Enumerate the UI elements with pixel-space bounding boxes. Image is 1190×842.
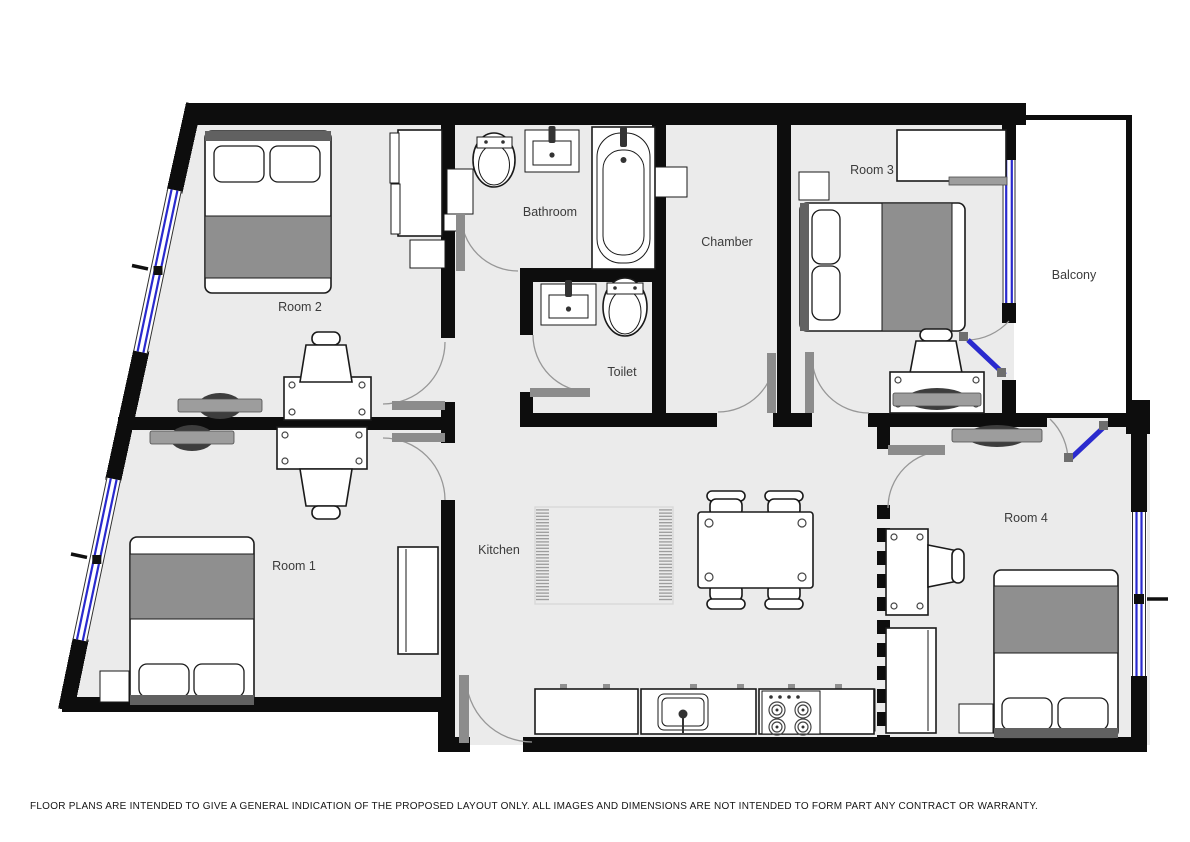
toilet-bathroom (473, 133, 515, 187)
label-room3: Room 3 (850, 163, 894, 177)
niche-chamber-wall (655, 167, 687, 197)
kitchen-counter (535, 684, 874, 735)
label-kitchen: Kitchen (478, 543, 520, 557)
wall-right (1131, 414, 1147, 512)
wall-bottom (523, 737, 1147, 752)
desk-room3-top (897, 130, 1006, 181)
niche-room2-wall (447, 169, 473, 214)
bed-room3 (800, 203, 965, 331)
nightstand-room3 (799, 172, 829, 200)
toilet-wc (603, 278, 647, 336)
chair-room4 (928, 545, 964, 587)
nightstand-room2 (410, 240, 445, 268)
tv-table-room3 (890, 372, 984, 413)
wardrobe-room2 (390, 130, 442, 236)
floor-plan-page: Room 2 Room 1 Room 3 Room 4 Bathroom Toi… (0, 0, 1190, 842)
label-chamber: Chamber (701, 235, 752, 249)
wall-chamber-right (777, 125, 791, 414)
bed-room2 (205, 131, 331, 293)
disclaimer-text: FLOOR PLANS ARE INTENDED TO GIVE A GENER… (30, 801, 1038, 812)
label-toilet: Toilet (607, 365, 637, 379)
label-room2: Room 2 (278, 300, 322, 314)
wall-toilet-bottom (520, 413, 717, 427)
desk-room4 (886, 529, 928, 615)
label-room1: Room 1 (272, 559, 316, 573)
dining-table (698, 512, 813, 588)
wardrobe-room4 (886, 628, 936, 733)
wardrobe-room1 (398, 547, 438, 654)
label-bathroom: Bathroom (523, 205, 577, 219)
kitchen-sink (658, 694, 708, 733)
desk-room2 (284, 377, 371, 420)
floor-plan-drawing: Room 2 Room 1 Room 3 Room 4 Bathroom Toi… (0, 0, 1190, 842)
label-balcony: Balcony (1052, 268, 1097, 282)
wall-bathroom-bottom (520, 268, 657, 282)
bed-room1 (130, 537, 254, 705)
bed-room4 (994, 570, 1118, 738)
nightstand-room1 (100, 671, 129, 702)
bathtub (592, 127, 655, 269)
balcony-floor (1014, 120, 1126, 414)
sink-bathroom (525, 126, 579, 172)
wall-top (186, 103, 1026, 125)
label-room4: Room 4 (1004, 511, 1048, 525)
wall-toilet-left (520, 282, 533, 335)
counter-unit (535, 689, 638, 734)
desk-room1 (277, 427, 367, 469)
sink-toilet (541, 280, 596, 325)
nightstand-room4 (959, 704, 993, 733)
stove-burners (762, 691, 820, 735)
